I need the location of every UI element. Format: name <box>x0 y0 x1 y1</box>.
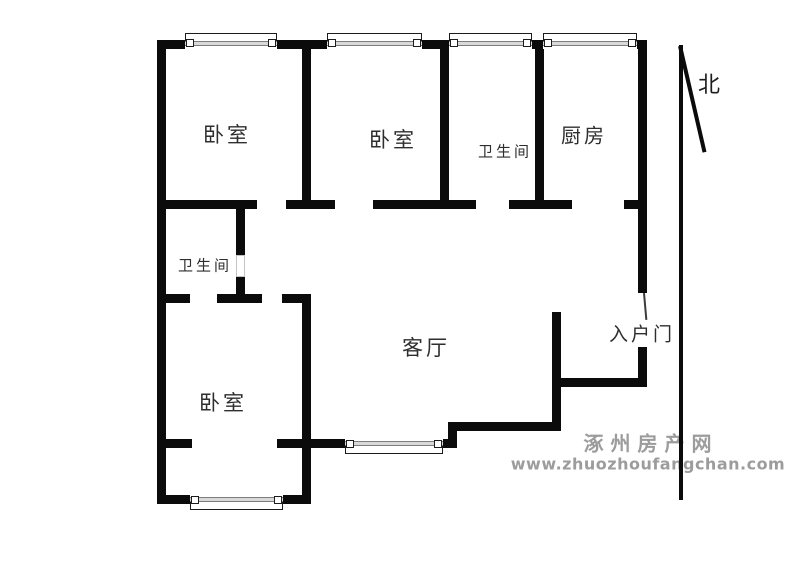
window-end-cap <box>191 496 199 504</box>
window-glass <box>543 41 637 46</box>
wall-segment <box>236 209 245 255</box>
bathroom-west-door-opening <box>236 255 245 277</box>
wall-segment <box>277 40 327 49</box>
window-end-cap <box>628 39 636 47</box>
wall-segment <box>282 294 311 303</box>
wall-segment <box>157 200 257 209</box>
wall-segment <box>448 422 457 439</box>
window-end-cap <box>274 496 282 504</box>
window-end-cap <box>346 440 354 448</box>
wall-segment <box>157 294 190 303</box>
wall-segment <box>440 49 449 200</box>
wall-segment <box>277 439 345 448</box>
wall-segment <box>457 422 561 431</box>
window-glass <box>190 497 283 502</box>
window-glass <box>449 41 532 46</box>
room-label-bedroom-southwest: 卧室 <box>199 387 247 417</box>
wall-segment <box>443 439 457 448</box>
window-end-cap <box>544 39 552 47</box>
window-glass <box>185 41 277 46</box>
window-end-cap <box>328 39 336 47</box>
wall-segment <box>283 495 311 504</box>
north-arrow-line <box>679 45 683 500</box>
wall-segment <box>302 303 311 504</box>
wall-segment <box>236 277 245 294</box>
wall-segment <box>552 378 647 387</box>
window-end-cap <box>523 39 531 47</box>
north-label: 北 <box>698 67 720 99</box>
window-glass <box>345 441 443 446</box>
window-end-cap <box>413 39 421 47</box>
wall-segment <box>217 294 262 303</box>
floor-plan-canvas: 北 涿州房产网 www.zhuozhoufangchan.com 卧室卧室卫生间… <box>0 0 800 570</box>
wall-segment <box>509 200 572 209</box>
room-label-living-room: 客厅 <box>402 332 450 362</box>
room-label-bathroom-north: 卫生间 <box>478 141 532 162</box>
wall-segment <box>157 40 166 504</box>
wall-segment <box>552 312 561 431</box>
wall-segment <box>286 200 335 209</box>
wall-segment <box>535 49 544 200</box>
wall-segment <box>157 495 190 504</box>
room-label-kitchen: 厨房 <box>561 120 607 149</box>
window-end-cap <box>268 39 276 47</box>
entry-door-leaf <box>643 293 647 320</box>
watermark-site-url: www.zhuozhoufangchan.com <box>511 455 785 474</box>
room-label-bathroom-west: 卫生间 <box>178 255 232 276</box>
wall-segment <box>373 200 476 209</box>
wall-segment <box>624 200 647 209</box>
room-label-bedroom-north: 卧室 <box>369 124 417 154</box>
window-glass <box>327 41 422 46</box>
window-end-cap <box>450 39 458 47</box>
wall-segment <box>302 49 311 200</box>
wall-segment <box>638 40 647 293</box>
room-label-bedroom-northwest: 卧室 <box>203 119 251 149</box>
window-end-cap <box>434 440 442 448</box>
wall-segment <box>638 347 647 387</box>
wall-segment <box>157 439 192 448</box>
watermark-site-name: 涿州房产网 <box>584 428 719 457</box>
wall-segment <box>532 40 543 49</box>
window-end-cap <box>186 39 194 47</box>
room-label-entry-door: 入户门 <box>609 320 675 347</box>
wall-segment <box>422 40 449 49</box>
